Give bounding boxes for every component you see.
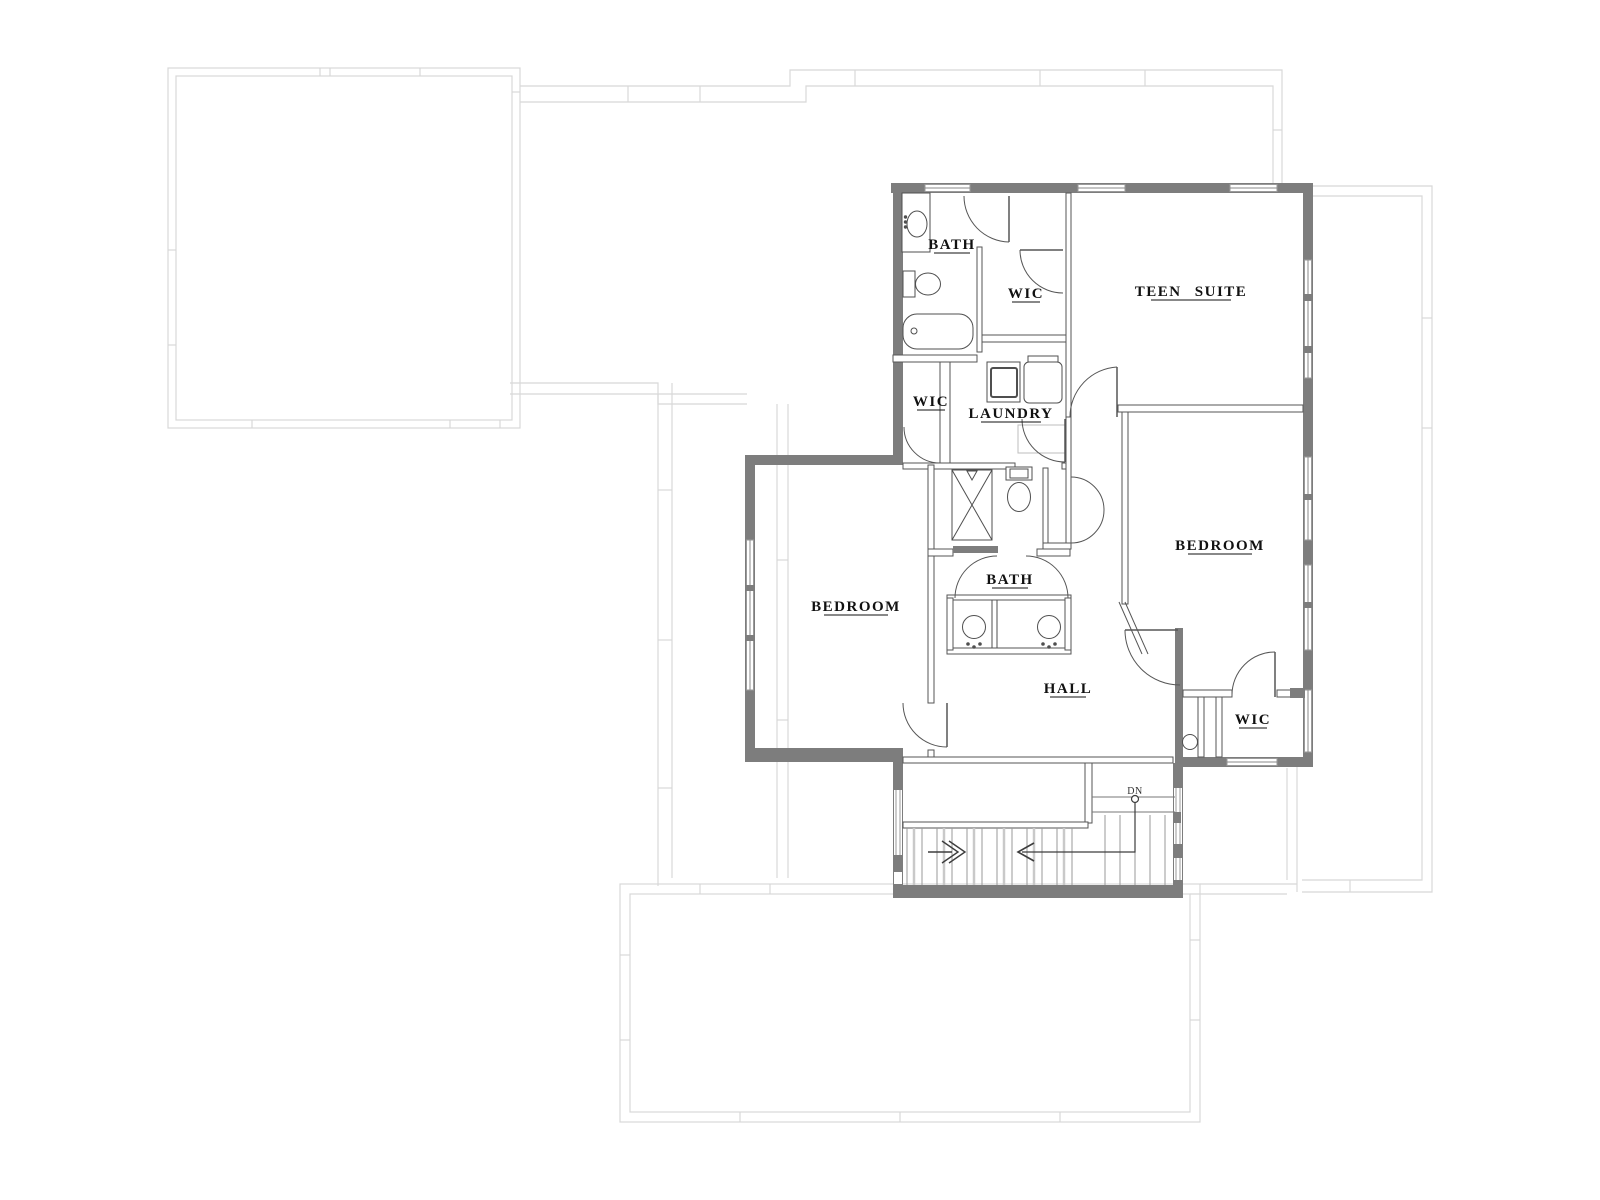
room-label-wic-mid: WIC	[913, 394, 949, 410]
stair-up-arrow	[928, 841, 965, 863]
door-wic-lower	[1232, 652, 1275, 697]
wall-diagonal	[1119, 602, 1148, 654]
wall-vanity-right	[1065, 598, 1071, 650]
wall-pier	[1290, 688, 1305, 698]
wall-bedroom-top	[745, 455, 903, 465]
wall-teen-west	[1066, 193, 1071, 417]
window	[1227, 759, 1277, 766]
fixtures	[902, 193, 1198, 750]
wall-wic-divider-2	[1216, 697, 1222, 757]
stair-railing	[903, 822, 1088, 828]
outline-right-band-closure	[1287, 767, 1297, 892]
closet-fixture-icon	[1183, 735, 1198, 750]
door-bedroom-right	[1125, 630, 1180, 685]
door-bath-upper	[964, 196, 1009, 242]
wall-bath-entry-right	[1037, 549, 1070, 556]
laundry-counter	[1018, 425, 1065, 453]
window	[1304, 260, 1312, 378]
window	[1230, 185, 1277, 192]
wall-bath-bottom	[893, 355, 977, 362]
window	[1304, 565, 1312, 650]
outline-bottom-outer	[620, 884, 1200, 1122]
wall-closet-bottom	[1043, 543, 1071, 549]
window	[925, 185, 970, 192]
double-vanity-icon	[963, 600, 1061, 648]
wall-wic-mid-east	[940, 362, 950, 463]
door-bedroom-left	[903, 703, 947, 747]
wall-bedroom-east	[928, 465, 934, 703]
wall-closet-front	[1066, 417, 1071, 543]
outline-garage-inner	[176, 76, 512, 420]
outline-bottom-stub	[1190, 884, 1297, 894]
wall-bath-center-east	[1043, 468, 1048, 543]
room-label-bath-center: BATH	[986, 572, 1033, 588]
washer-icon	[987, 362, 1020, 402]
wall-vanity-bottom	[947, 648, 1071, 654]
window	[1078, 185, 1125, 192]
wall-vanity-top	[947, 595, 1071, 600]
toilet-icon	[1006, 467, 1032, 512]
room-label-hall: HALL	[1044, 681, 1093, 697]
outline-left-outer	[510, 383, 658, 886]
stair-dn-label: DN	[1127, 786, 1142, 797]
outline-corridor-outer	[520, 70, 1282, 183]
outline-right-band-outer	[1302, 186, 1432, 892]
dryer-icon	[1024, 356, 1062, 403]
window	[1305, 690, 1312, 752]
wall-bath-entry-left	[928, 549, 953, 556]
wall-wic-west	[1175, 628, 1183, 763]
outline-garage-outer	[168, 68, 520, 428]
outline-mid-vertical	[777, 404, 788, 878]
door-linen-closet	[1071, 477, 1104, 543]
wall-bedroom-right-west	[1122, 412, 1128, 604]
door-wic-mid	[904, 427, 940, 463]
wall-stair-bottom	[893, 885, 1183, 898]
room-label-wic-lower: WIC	[1235, 712, 1271, 728]
outline-left-inner	[510, 383, 672, 878]
wall-wic-divider-1	[1198, 697, 1204, 757]
wall-bedroom-bottom	[745, 748, 903, 762]
outline-bottom-inner	[630, 894, 1190, 1112]
wall-bath-wic-divider	[977, 247, 982, 352]
vanity-sink-icon	[902, 193, 930, 252]
wall-wic-lower-top-left	[1183, 690, 1232, 697]
landing-rail-vertical	[1085, 763, 1092, 823]
wall-laundry-bottom-left	[903, 463, 1015, 469]
lower-floor-outline	[168, 68, 1432, 1122]
wall-vanity-left	[947, 598, 953, 650]
window	[1304, 457, 1312, 540]
floor-plan-drawing: BATH WIC TEEN SUITE WIC LAUNDRY BEDROOM …	[0, 0, 1600, 1200]
outline-corridor-inner	[520, 86, 1273, 183]
room-label-bedroom-right: BEDROOM	[1175, 538, 1265, 554]
hall-stair-railing	[903, 757, 1173, 763]
door-teen-suite	[1070, 367, 1117, 417]
outline-right-band-inner	[1302, 196, 1422, 880]
shower-icon	[952, 470, 992, 540]
stair-wall-block	[1173, 812, 1181, 823]
bathtub-icon	[903, 314, 973, 349]
room-label-teen-suite: TEEN SUITE	[1135, 284, 1248, 300]
stairs	[907, 796, 1175, 886]
room-label-laundry: LAUNDRY	[969, 406, 1054, 422]
wall-teen-bedroom-divider	[1118, 405, 1303, 412]
floor-plan-sheet: BATH WIC TEEN SUITE WIC LAUNDRY BEDROOM …	[0, 0, 1600, 1200]
outline-left-connector	[658, 394, 747, 404]
shower-sill	[953, 546, 998, 553]
toilet-icon	[903, 271, 941, 297]
room-label-wic-upper: WIC	[1008, 286, 1044, 302]
room-label-bath-upper: BATH	[928, 237, 975, 253]
wall-wic-upper-bottom	[982, 335, 1067, 342]
window	[746, 540, 754, 690]
room-label-bedroom-left: BEDROOM	[811, 599, 901, 615]
